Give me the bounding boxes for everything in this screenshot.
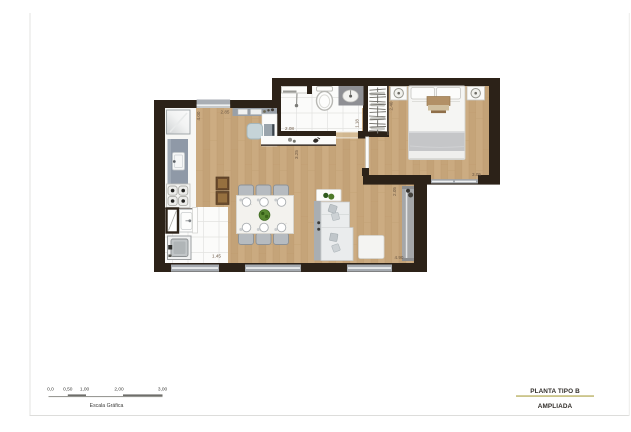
svg-text:0,0: 0,0 — [47, 387, 54, 393]
svg-text:PLANTA TIPO B: PLANTA TIPO B — [530, 388, 580, 395]
svg-text:1,00: 1,00 — [80, 387, 90, 393]
svg-text:3,00: 3,00 — [158, 387, 168, 393]
svg-text:2.85: 2.85 — [221, 110, 230, 115]
svg-text:Escala Gráfica: Escala Gráfica — [90, 403, 124, 409]
svg-text:AMPLIADA: AMPLIADA — [538, 403, 573, 410]
svg-text:4.00: 4.00 — [196, 111, 201, 120]
svg-text:2,00: 2,00 — [114, 387, 124, 393]
svg-text:1.45: 1.45 — [212, 254, 221, 259]
svg-text:1.18: 1.18 — [354, 119, 359, 128]
svg-text:2.08: 2.08 — [285, 126, 294, 131]
svg-text:0,50: 0,50 — [63, 387, 73, 393]
svg-text:2.05: 2.05 — [392, 187, 397, 196]
svg-text:3.05: 3.05 — [472, 172, 481, 177]
svg-text:4.90: 4.90 — [395, 255, 404, 260]
svg-text:3.25: 3.25 — [294, 150, 299, 159]
svg-text:2.40: 2.40 — [389, 101, 394, 110]
